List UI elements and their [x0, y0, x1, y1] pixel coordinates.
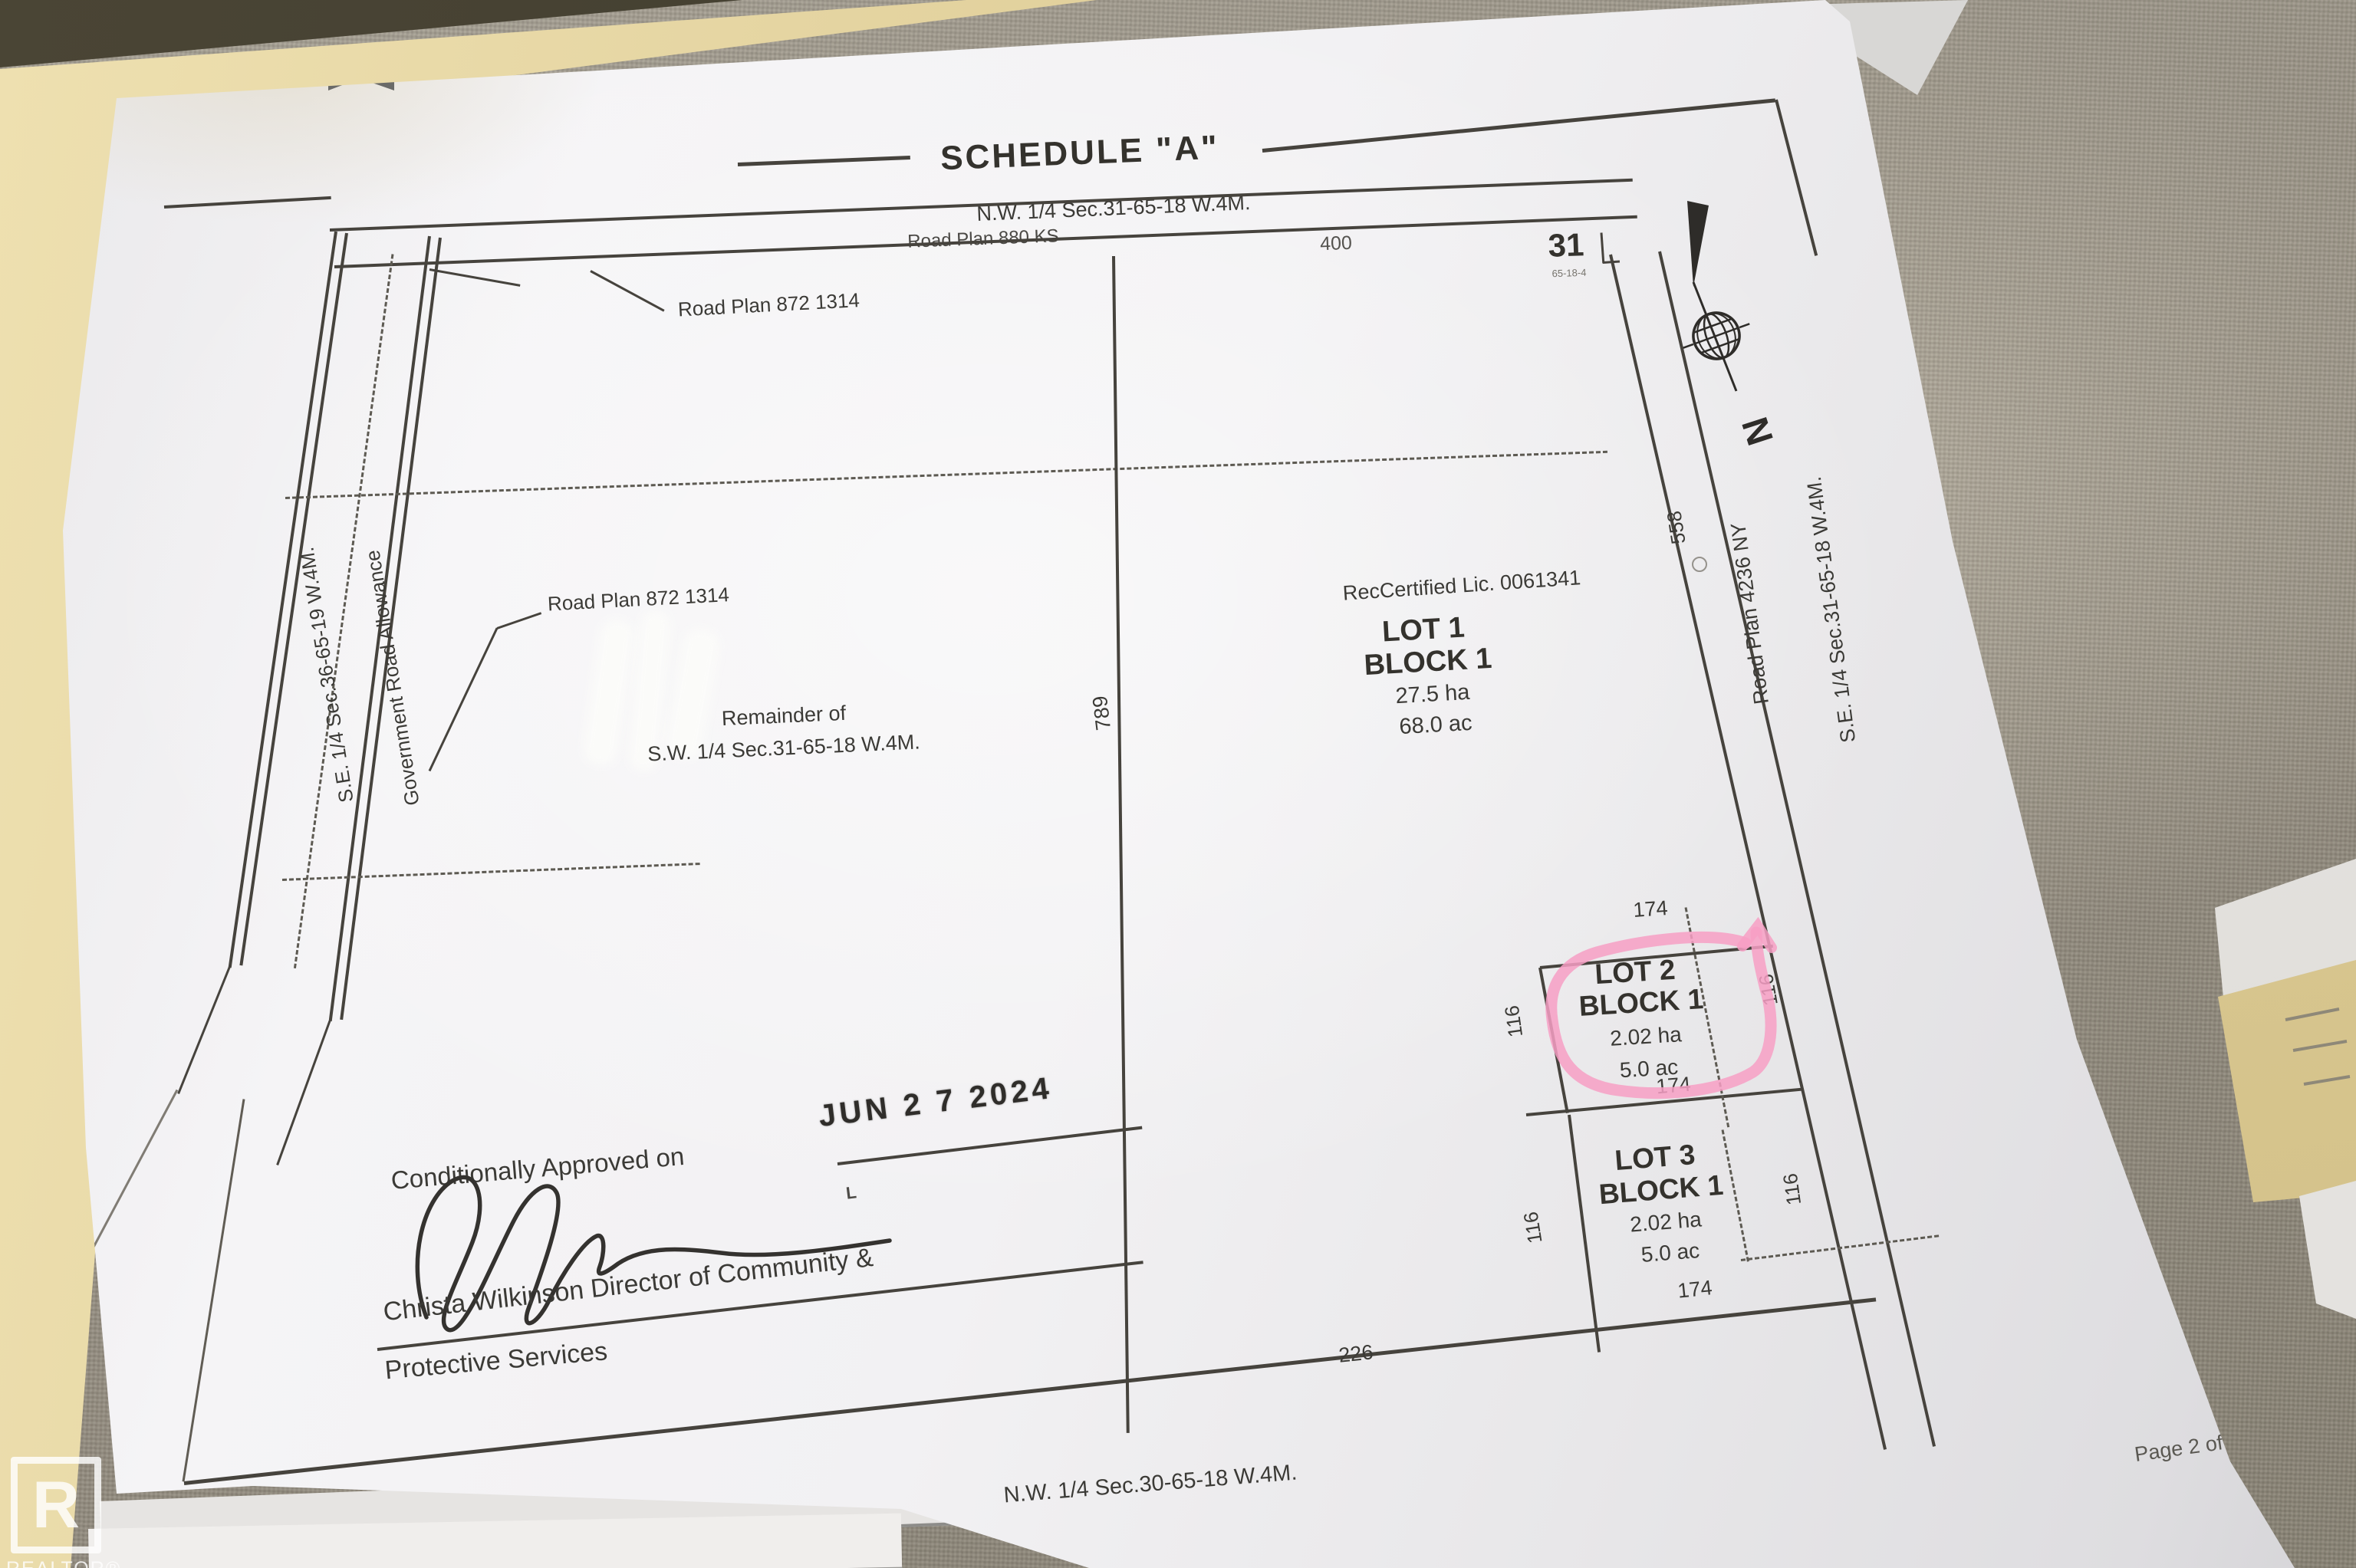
title-rule-right: [1262, 98, 1775, 153]
title-rule-left: [738, 156, 910, 166]
lot3-right-dim: 116: [1779, 1172, 1806, 1206]
center-boundary-line: [1112, 256, 1130, 1433]
road-plan-872-mid-label: Road Plan 872 1314: [547, 583, 729, 616]
lot3-area-ac: 5.0 ac: [1640, 1238, 1701, 1267]
leader-line: [497, 612, 542, 630]
remainder-label-line1: Remainder of: [721, 702, 846, 731]
registered-mark-circle: [1692, 557, 1707, 572]
plan-title: SCHEDULE "A": [939, 129, 1219, 179]
lot3-area-ha: 2.02 ha: [1629, 1207, 1703, 1237]
neatline-left-segment: [164, 196, 331, 209]
dim-400: 400: [1320, 232, 1353, 256]
left-road-curve: [177, 965, 231, 1094]
lot1-area-ha: 27.5 ha: [1395, 680, 1470, 709]
dim-558: 558: [1662, 509, 1690, 546]
tab-pencil-squiggle: [2270, 1004, 2354, 1119]
photo-of-survey-plan: SCHEDULE "A" N.W. 1/4 Sec.31-65-18 W.4M.…: [0, 0, 2356, 1568]
realtor-logo-icon: R: [11, 1457, 101, 1553]
globe-icon: [1676, 302, 1758, 370]
section-dashed-line: [282, 863, 700, 881]
realtor-logo-text: REALTOR®: [6, 1558, 137, 1568]
north-arrow-icon: [1687, 201, 1709, 287]
lot1-area-ac: 68.0 ac: [1399, 711, 1473, 740]
lot1-name: LOT 1: [1381, 612, 1466, 649]
left-road-line: [239, 233, 348, 966]
road-plan-4236-label: Road Plan 4236 NY: [1726, 521, 1774, 706]
pink-highlighter-circle: [1526, 897, 1802, 1127]
realtor-logo-letter: R: [32, 1472, 80, 1538]
leader-line: [590, 270, 664, 311]
lot2-left-dim: 116: [1500, 1004, 1528, 1038]
lot3-left-dim: 116: [1519, 1210, 1547, 1245]
lot3-bottom-dim: 174: [1677, 1276, 1713, 1303]
rec-certified-label: RecCertified Lic. 0061341: [1342, 566, 1581, 606]
lot3-boundary: [1568, 1115, 1601, 1353]
whiteout-smudge: [582, 618, 636, 767]
se-quarter-31-label: S.E. 1/4 Sec.31-65-18 W.4M.: [1802, 475, 1861, 745]
section-corner-tick: [1601, 232, 1605, 263]
quarter-dashed-line: [1722, 1129, 1749, 1261]
se-quarter-36-label: S.E. 1/4 Sec.36-65-19 W.4M.: [294, 545, 358, 804]
bottom-quarter-label: N.W. 1/4 Sec.30-65-18 W.4M.: [1002, 1461, 1298, 1509]
left-road-curve: [276, 1021, 331, 1165]
dim-226: 226: [1338, 1340, 1374, 1368]
lot1-block: BLOCK 1: [1364, 643, 1493, 682]
section-31-sub-label: 65-18-4: [1551, 267, 1586, 280]
date-stamp: JUN 2 7 2024: [817, 1071, 1055, 1134]
gov-road-allowance-label: Government Road Allowance: [360, 548, 424, 807]
west-boundary-line: [183, 1099, 245, 1481]
north-compass: N: [1643, 198, 1804, 459]
section-31-label: 31: [1548, 226, 1584, 265]
road-corner-line: [429, 268, 521, 287]
dim-789: 789: [1088, 695, 1116, 732]
section-dashed-line: [285, 451, 1607, 499]
road-plan-872-top-label: Road Plan 872 1314: [677, 288, 860, 321]
leader-line: [429, 628, 499, 772]
north-letter: N: [1733, 413, 1780, 450]
realtor-watermark: R REALTOR®: [6, 1457, 137, 1568]
